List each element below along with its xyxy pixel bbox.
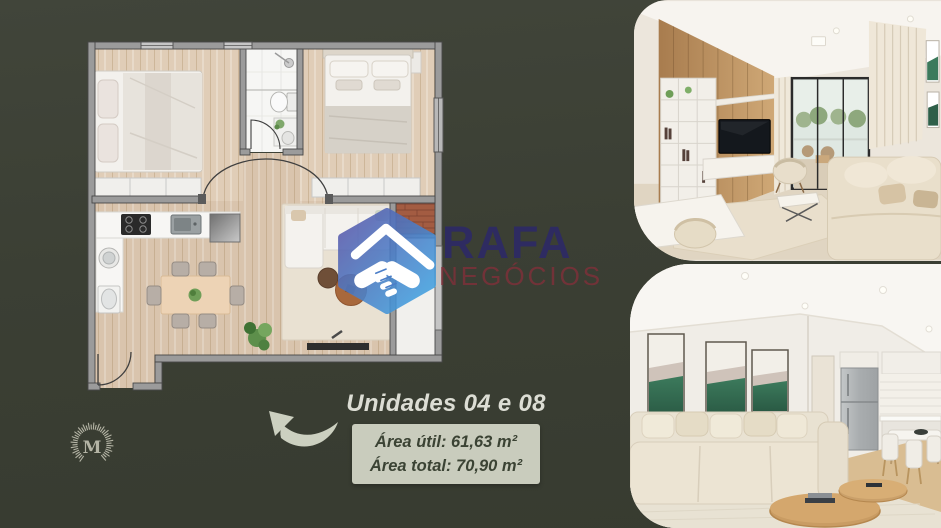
- stove: [121, 214, 151, 235]
- door-jamb: [198, 194, 206, 204]
- real-estate-flyer: RAFA NEGÓCIOS M Unidades 04 e 08 Área út…: [0, 0, 941, 528]
- bedroom-1-furniture: [94, 71, 202, 197]
- watermark-text: RAFA NEGÓCIOS: [442, 224, 603, 290]
- photo-living-room-tv: [634, 0, 941, 261]
- photo-living-kitchen: [630, 264, 941, 528]
- side-table: [318, 268, 338, 288]
- area-info-box: Área útil: 61,63 m² Área total: 70,90 m²: [352, 424, 540, 484]
- area-util: Área útil: 61,63 m²: [375, 431, 517, 453]
- unit-title: Unidades 04 e 08: [340, 390, 552, 418]
- sofa: [827, 156, 941, 260]
- door-jamb: [325, 194, 333, 204]
- apartment-floor-plan: [85, 38, 445, 392]
- monogram-logo: M: [63, 417, 121, 475]
- sofa: [630, 412, 848, 504]
- corner-cabinet: [210, 214, 240, 242]
- shelf-unit: [661, 78, 716, 212]
- tv-console: [307, 343, 369, 350]
- monogram-letter: M: [83, 438, 102, 458]
- brick-grill-area: [396, 204, 435, 234]
- curtain: [869, 21, 926, 149]
- sunburst-icon: M: [63, 417, 121, 475]
- brand-name: RAFA: [442, 224, 603, 262]
- area-total: Área total: 70,90 m²: [370, 455, 522, 477]
- brand-subtitle: NEGÓCIOS: [439, 262, 603, 290]
- curved-arrow-icon: [261, 403, 339, 457]
